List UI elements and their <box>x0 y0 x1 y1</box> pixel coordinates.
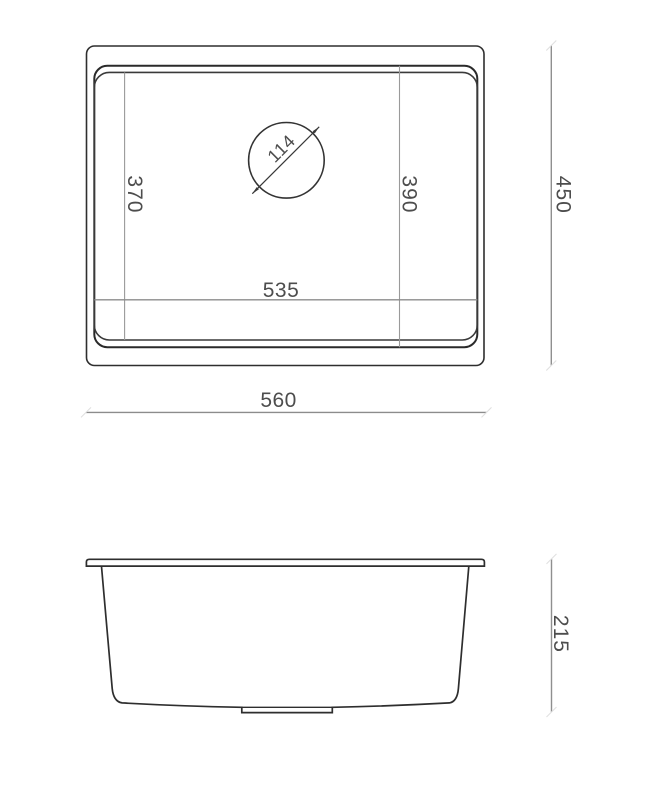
svg-text:535: 535 <box>263 279 300 302</box>
svg-text:114: 114 <box>264 131 300 167</box>
svg-text:215: 215 <box>549 615 572 653</box>
svg-text:450: 450 <box>551 176 574 214</box>
svg-text:390: 390 <box>398 175 421 213</box>
svg-text:560: 560 <box>260 389 297 412</box>
svg-text:370: 370 <box>123 175 146 213</box>
